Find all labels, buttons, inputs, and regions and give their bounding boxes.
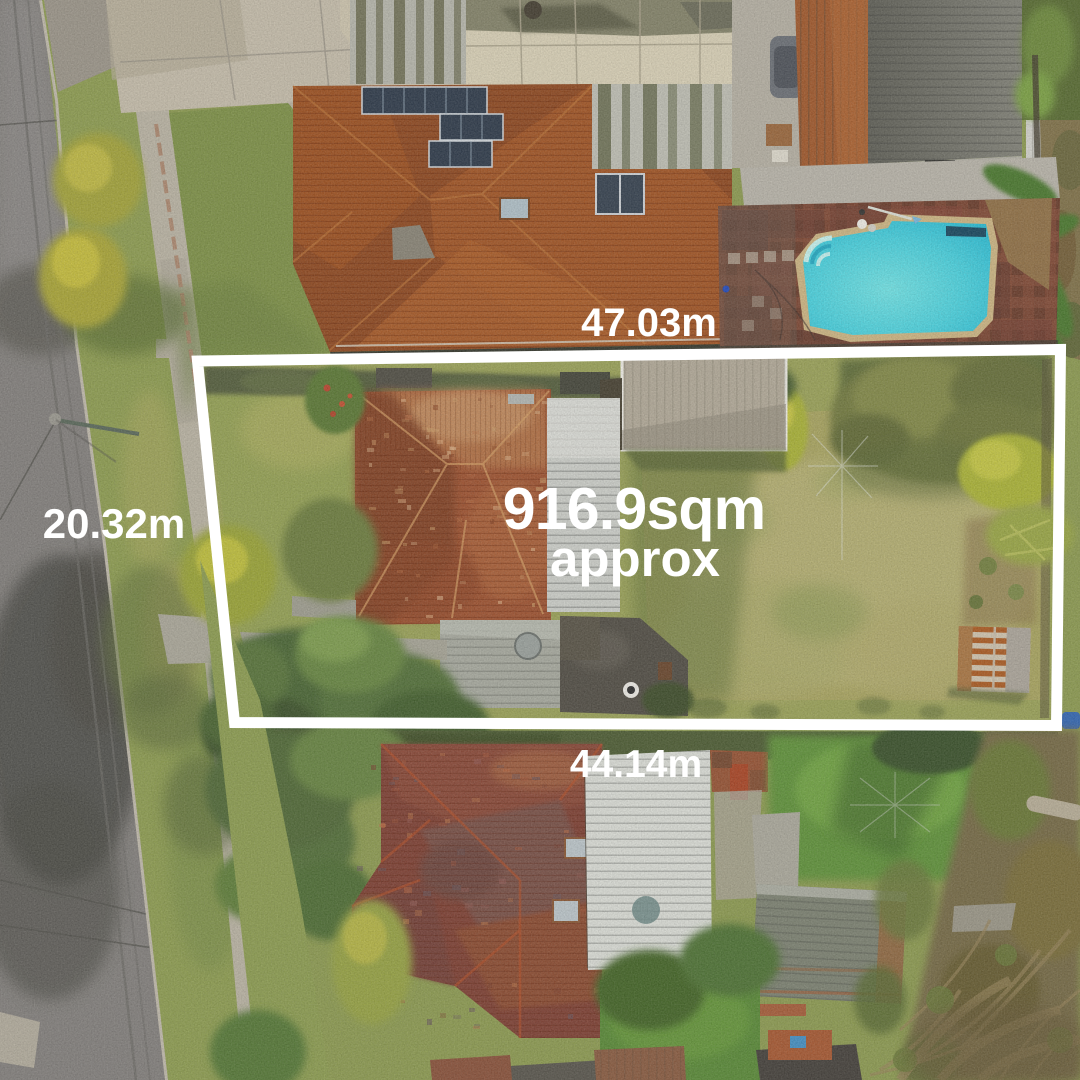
svg-text:44.14m: 44.14m	[570, 743, 702, 786]
svg-text:20.32m: 20.32m	[43, 500, 185, 547]
svg-text:approx: approx	[550, 530, 720, 587]
svg-text:47.03m: 47.03m	[581, 301, 717, 345]
